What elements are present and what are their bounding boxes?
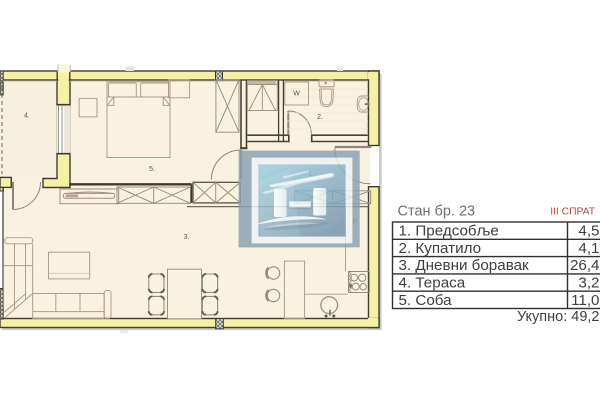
svg-text:III СПРАТ: III СПРАТ [550, 207, 596, 218]
svg-text:W: W [293, 91, 300, 98]
svg-text:3.: 3. [184, 232, 190, 241]
svg-text:4,5: 4,5 [578, 223, 599, 240]
svg-text:3,2: 3,2 [578, 275, 599, 292]
svg-text:2.: 2. [317, 112, 323, 121]
svg-text:4,1: 4,1 [578, 240, 599, 257]
svg-text:5. Соба: 5. Соба [399, 292, 453, 309]
svg-text:2. Купатило: 2. Купатило [399, 240, 482, 257]
svg-text:4.: 4. [24, 113, 30, 120]
svg-text:Укупно: 49,2: Укупно: 49,2 [517, 309, 600, 325]
svg-text:11,0: 11,0 [571, 292, 599, 309]
svg-text:4. Тераса: 4. Тераса [399, 275, 466, 292]
svg-text:3. Дневни боравак: 3. Дневни боравак [399, 257, 530, 274]
svg-text:Стан бр. 23: Стан бр. 23 [398, 204, 476, 220]
svg-text:26,4: 26,4 [570, 257, 600, 274]
svg-text:1. Предсобље: 1. Предсобље [399, 223, 499, 240]
svg-text:5.: 5. [149, 164, 155, 173]
